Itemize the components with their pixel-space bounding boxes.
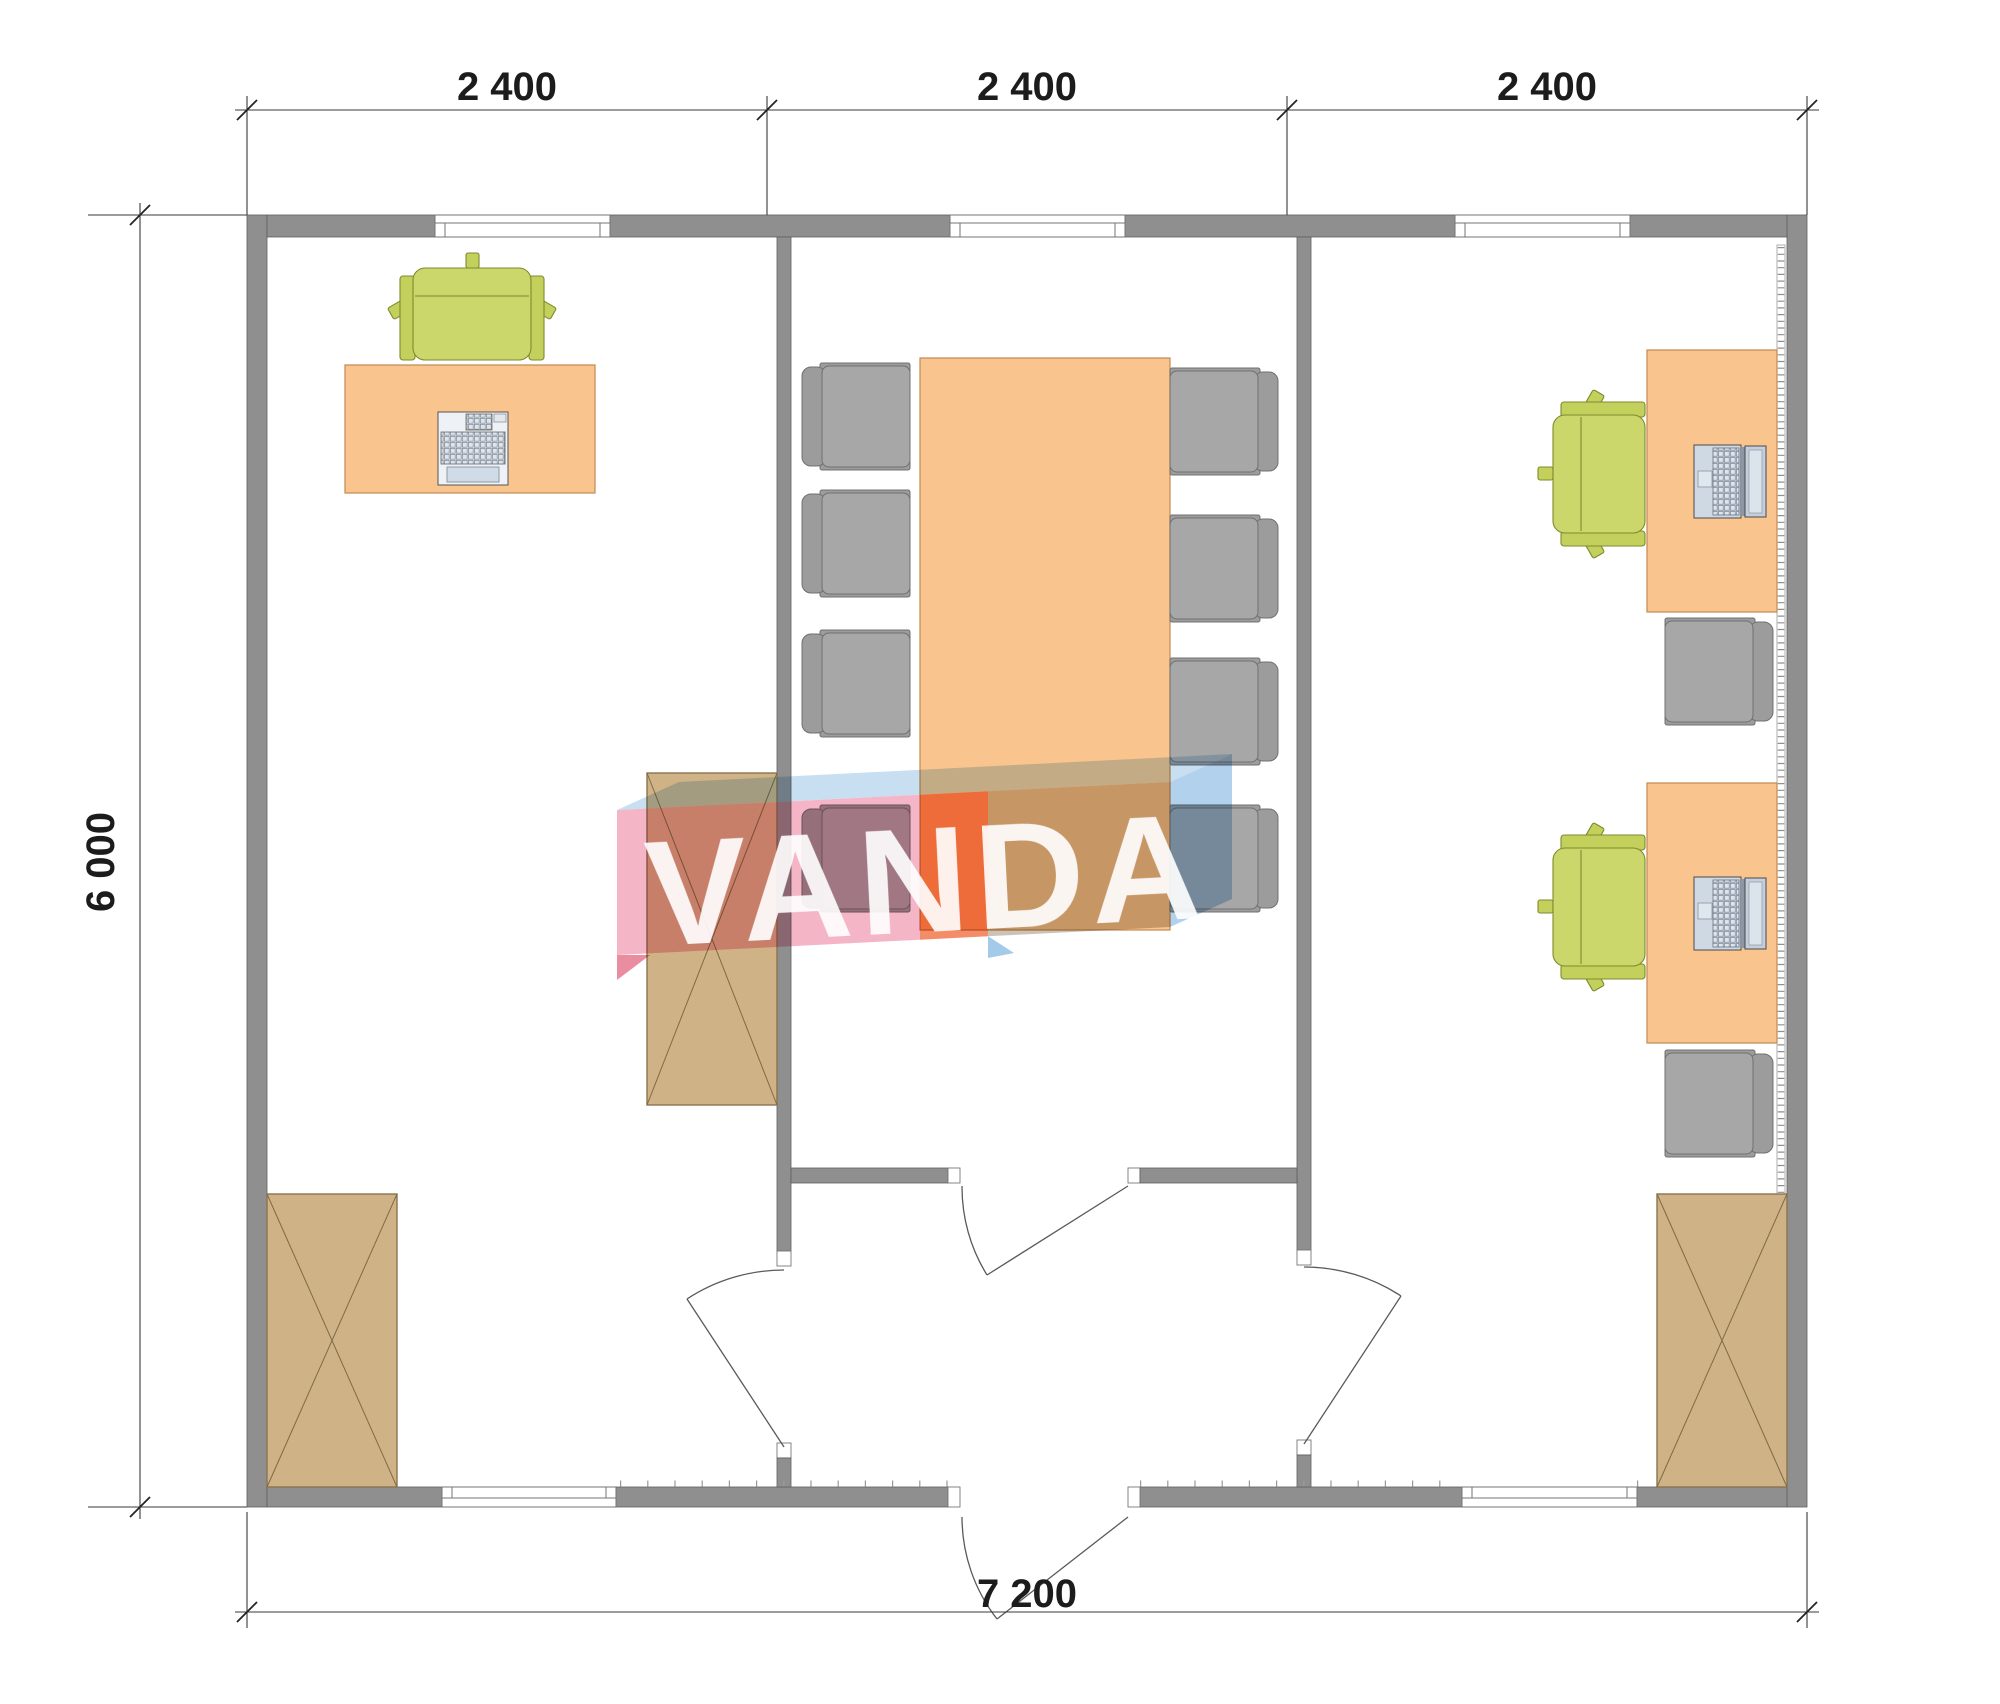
window-top-center — [950, 215, 1125, 237]
side-chair — [1665, 1050, 1773, 1157]
door-jamb — [948, 1168, 960, 1183]
laptop — [1694, 877, 1766, 950]
window-bottom-left — [442, 1487, 616, 1507]
door-jamb — [777, 1251, 791, 1266]
dim-label-top-left: 2 400 — [457, 65, 557, 109]
wall-bottom-seg — [267, 1487, 442, 1507]
keyboard — [438, 412, 508, 485]
door-jamb — [1297, 1440, 1311, 1455]
wall-divider-right — [1297, 237, 1311, 1250]
wall-right — [1787, 215, 1807, 1507]
door-jamb — [1128, 1168, 1140, 1183]
wall-top-seg — [610, 215, 950, 237]
wall-top-seg — [1630, 215, 1787, 237]
wall-top-seg — [267, 215, 435, 237]
room-right-office — [1538, 350, 1787, 1487]
conference-chair — [1170, 368, 1278, 475]
desk-chair — [387, 253, 556, 360]
wall-bottom-seg — [1140, 1487, 1462, 1507]
dim-label-bottom: 7 200 — [977, 1572, 1077, 1616]
door-jamb — [1297, 1250, 1311, 1265]
door-jamb — [948, 1487, 960, 1507]
door-right-office — [1304, 1267, 1401, 1444]
wall-meeting-bottom-left — [791, 1168, 948, 1183]
vanda-watermark: VANDA — [617, 754, 1232, 980]
conference-chair — [802, 630, 910, 737]
side-chair — [1665, 618, 1773, 725]
desk-chair — [1538, 389, 1645, 558]
laptop — [1694, 445, 1766, 518]
door-jamb — [777, 1443, 791, 1458]
wall-left — [247, 215, 267, 1507]
watermark-fold-pink — [617, 955, 650, 980]
wall-bottom-seg — [1637, 1487, 1787, 1507]
window-top-right — [1455, 215, 1630, 237]
cabinet-bottom-right — [1657, 1194, 1787, 1487]
floor-plan-drawing: 2 400 2 400 2 400 6 000 7 200 VANDA — [0, 0, 2000, 1704]
conference-chair — [802, 490, 910, 597]
wall-bottom-seg — [616, 1487, 948, 1507]
cabinet-bottom-left — [267, 1194, 397, 1487]
desk-chair — [1538, 822, 1645, 991]
dim-label-top-right: 2 400 — [1497, 65, 1597, 109]
watermark-logo-text: VANDA — [641, 782, 1211, 978]
conference-chair — [1170, 515, 1278, 622]
dim-label-top-center: 2 400 — [977, 65, 1077, 109]
doors — [687, 1186, 1401, 1619]
conference-chair — [1170, 658, 1278, 765]
window-top-left — [435, 215, 610, 237]
dim-label-left: 6 000 — [79, 812, 123, 912]
conference-chair — [802, 363, 910, 470]
door-left-office — [687, 1270, 784, 1447]
floor-plan-canvas: 2 400 2 400 2 400 6 000 7 200 VANDA — [0, 0, 2000, 1704]
door-meeting-room — [962, 1186, 1128, 1275]
wall-divider-left — [777, 237, 791, 1251]
window-bottom-right — [1462, 1487, 1637, 1507]
wall-meeting-bottom-right — [1140, 1168, 1297, 1183]
door-jamb — [1128, 1487, 1140, 1507]
wall-top-seg — [1125, 215, 1455, 237]
